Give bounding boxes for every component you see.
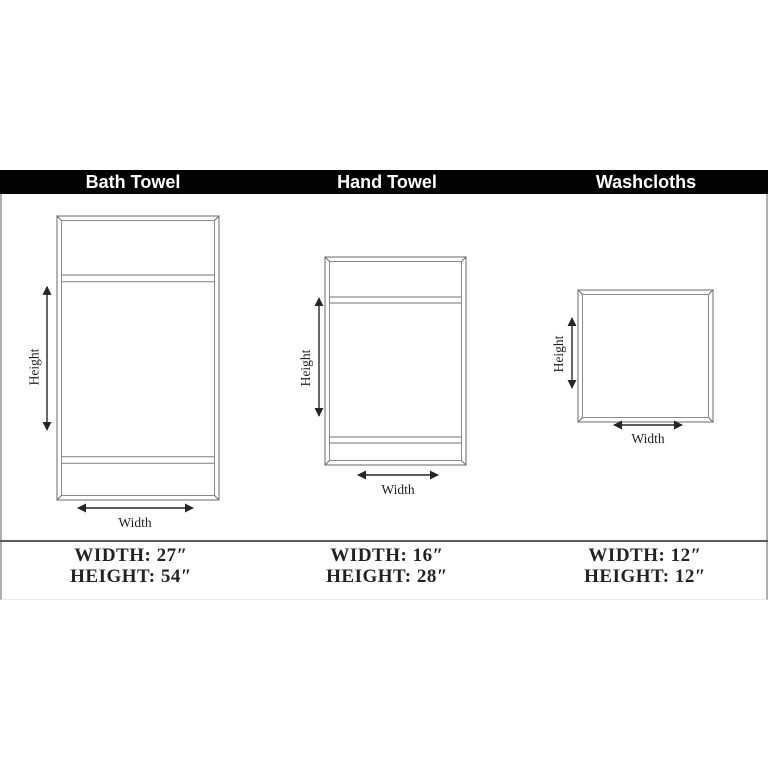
dobby-border-bottom xyxy=(330,437,461,443)
height-label: Height xyxy=(551,335,566,372)
towel-frame-outer xyxy=(57,216,219,500)
towel-frame-outer xyxy=(578,290,713,422)
towel-size-chart: Bath Towel Hand Towel Washcloths Heig xyxy=(0,0,768,768)
dobby-border-top xyxy=(330,297,461,303)
width-label: Width xyxy=(631,431,664,446)
width-label: Width xyxy=(381,482,414,497)
dimensions-hand-towel: WIDTH: 16″ HEIGHT: 28″ xyxy=(326,545,448,587)
header-label-hand-towel: Hand Towel xyxy=(337,170,437,194)
header-label-washcloths: Washcloths xyxy=(596,170,696,194)
hand-towel-diagram: Height Width xyxy=(295,247,485,502)
towel-frame-outer xyxy=(325,257,466,465)
frame-miter-corners xyxy=(325,257,466,465)
towel-frame-inner xyxy=(583,295,709,418)
dobby-border-top xyxy=(62,275,214,282)
hand-towel-height-text: HEIGHT: 28″ xyxy=(326,566,448,587)
frame-miter-corners xyxy=(57,216,219,500)
frame-miter-corners xyxy=(578,290,713,422)
washcloths-height-text: HEIGHT: 12″ xyxy=(584,566,706,587)
divider-line xyxy=(0,540,768,542)
washcloth-diagram: Height Width xyxy=(545,282,735,447)
towel-frame-inner xyxy=(62,221,215,496)
dimensions-washcloths: WIDTH: 12″ HEIGHT: 12″ xyxy=(584,545,706,587)
width-label: Width xyxy=(118,515,151,530)
bath-towel-diagram: Height Width xyxy=(25,205,235,535)
height-label: Height xyxy=(27,348,42,385)
height-label: Height xyxy=(298,349,313,386)
dimensions-bath-towel: WIDTH: 27″ HEIGHT: 54″ xyxy=(70,545,192,587)
dobby-border-bottom xyxy=(62,457,214,464)
hand-towel-width-text: WIDTH: 16″ xyxy=(326,545,448,566)
header-bar: Bath Towel Hand Towel Washcloths xyxy=(0,170,768,194)
header-label-bath-towel: Bath Towel xyxy=(86,170,181,194)
bath-towel-height-text: HEIGHT: 54″ xyxy=(70,566,192,587)
bath-towel-width-text: WIDTH: 27″ xyxy=(70,545,192,566)
washcloths-width-text: WIDTH: 12″ xyxy=(584,545,706,566)
towel-frame-inner xyxy=(330,262,462,461)
